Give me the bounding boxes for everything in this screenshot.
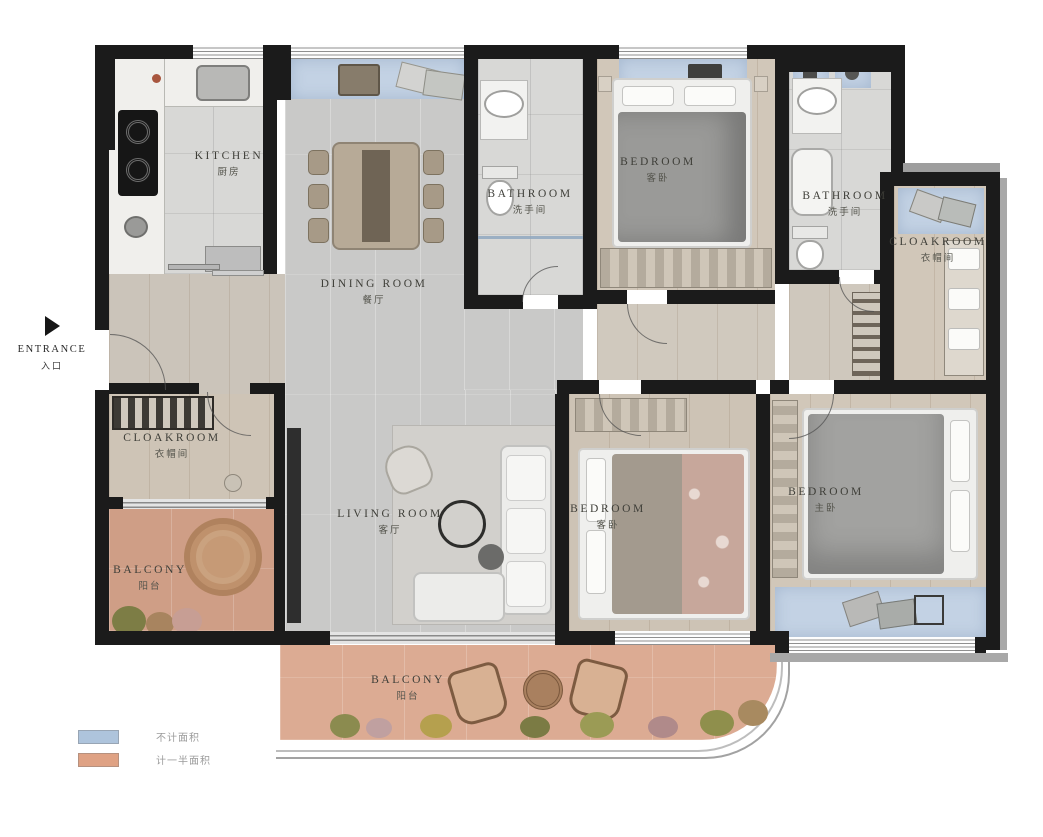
sofa-cushion (506, 455, 546, 501)
corridor-floor (464, 309, 583, 390)
eave-trim (770, 653, 1008, 662)
eave-trim (903, 163, 1000, 172)
legend-label-half-area: 计一半面积 (156, 752, 211, 767)
dining-chair (423, 184, 444, 209)
wall (789, 270, 839, 284)
entrance-marker: ENTRANCE 入口 (6, 316, 98, 372)
decor-dot (152, 74, 161, 83)
dining-chair (423, 218, 444, 243)
entrance-arrow-icon (45, 316, 60, 336)
corridor-bedrooms-floor (597, 304, 775, 380)
wall (263, 45, 277, 274)
window-master (789, 637, 975, 653)
wall (294, 631, 330, 645)
coffee-table (438, 500, 486, 548)
wall (756, 394, 770, 631)
legend-row-no-area: 不计面积 (78, 729, 211, 744)
wall (555, 394, 569, 631)
sliding-door-kitchen (212, 270, 264, 276)
sofa-cushion (506, 561, 546, 607)
wall (274, 390, 285, 631)
wall (464, 59, 478, 309)
wall (986, 172, 1000, 650)
plant (366, 718, 392, 738)
rattan-chair (184, 518, 262, 596)
wall (880, 186, 894, 380)
tray-decor (914, 595, 944, 625)
legend-swatch-orange (78, 753, 119, 767)
entrance-sublabel: 入口 (6, 359, 98, 372)
wall (95, 390, 109, 645)
wall (583, 59, 597, 309)
dining-chair (308, 218, 329, 243)
wall (641, 380, 756, 394)
wall (95, 631, 294, 645)
wall (775, 58, 789, 284)
kitchen-small-sink (124, 216, 148, 238)
window-bedroom-middle (615, 631, 750, 645)
wardrobe-bedroom-top (600, 248, 772, 288)
wall (558, 295, 583, 309)
bathroom1-toilet-tank (482, 166, 518, 179)
bed-middle-pillow (586, 458, 606, 522)
legend-row-half-area: 计一半面积 (78, 752, 211, 767)
bed-master-blanket (808, 414, 944, 574)
plant (648, 716, 678, 738)
wall (880, 172, 1000, 186)
sliding-door-living (330, 632, 555, 644)
wall (775, 631, 789, 653)
bathroom1-shower-glass (478, 236, 583, 239)
bed-master-pillow (950, 420, 970, 482)
wall (770, 380, 789, 394)
entrance-label: ENTRANCE (6, 344, 98, 355)
window-kitchen (193, 45, 263, 59)
dining-chair (308, 184, 329, 209)
dining-chair (308, 150, 329, 175)
wall (975, 637, 986, 653)
nightstand (754, 76, 768, 92)
plant (700, 710, 734, 736)
tv-wall (287, 428, 301, 623)
sofa-cushion (506, 508, 546, 554)
wall (597, 290, 627, 304)
stove-burner (126, 158, 150, 182)
coffee-table-small (478, 544, 504, 570)
bed-middle-pillow (586, 530, 606, 594)
pillow-decor (876, 598, 917, 629)
nightstand (598, 76, 612, 92)
wall (478, 295, 523, 309)
blanket-decor (422, 69, 465, 100)
plant (420, 714, 452, 738)
kitchen-sink (196, 65, 250, 101)
dining-runner (362, 150, 390, 242)
sliding-door-balcony-left (123, 499, 266, 509)
wall (109, 497, 123, 509)
bed-top-pillow (622, 86, 674, 106)
shelf-blanket (948, 288, 980, 310)
patio-table (523, 670, 563, 710)
bed-top-pillow (684, 86, 736, 106)
wall (266, 497, 280, 509)
bed-top-blanket (618, 112, 746, 242)
tray-decor (338, 64, 380, 96)
bathroom2-sink (797, 87, 837, 115)
floor-plan: KITCHEN 厨房 DINING ROOM 餐厅 BATHROOM 洗手间 B… (0, 0, 1043, 837)
plant (580, 712, 614, 738)
legend-label-no-area: 不计面积 (156, 729, 200, 744)
wall (557, 380, 599, 394)
plant (520, 716, 550, 738)
wall (834, 380, 986, 394)
plant (738, 700, 768, 726)
stove-burner (126, 120, 150, 144)
bed-master-pillow (950, 490, 970, 552)
bathroom1-toilet (486, 180, 514, 216)
cloakroom-left-table (224, 474, 242, 492)
eave-trim (1000, 178, 1007, 650)
window-dining (291, 45, 464, 59)
legend-swatch-blue (78, 730, 119, 744)
shelf-blanket (948, 328, 980, 350)
sofa-chaise (413, 572, 505, 622)
plant (330, 714, 360, 738)
window-bedroom-top (619, 45, 747, 59)
dining-chair (423, 150, 444, 175)
bathroom2-toilet-tank (792, 226, 828, 239)
bathroom1-sink (484, 90, 524, 118)
bathroom2-toilet (796, 240, 824, 270)
legend: 不计面积 计一半面积 (78, 729, 211, 775)
bathroom2-tub (791, 148, 833, 216)
wall (555, 631, 615, 645)
wall (95, 45, 109, 330)
shelf-blanket (948, 248, 980, 270)
bed-middle-floral (682, 454, 744, 614)
wall (667, 290, 775, 304)
cloakroom-left-shelf (112, 396, 214, 430)
wall (775, 58, 905, 72)
